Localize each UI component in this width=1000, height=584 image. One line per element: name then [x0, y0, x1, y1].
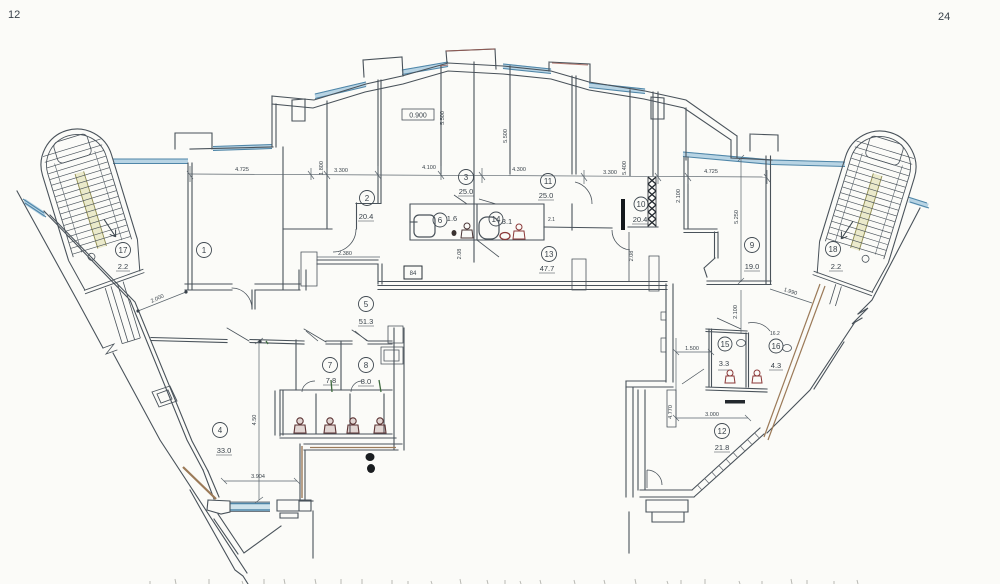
svg-text:25.0: 25.0 [539, 191, 554, 200]
svg-text:1.6: 1.6 [447, 214, 457, 223]
svg-text:10: 10 [637, 200, 646, 209]
svg-text:19.0: 19.0 [745, 262, 760, 271]
svg-text:2.1: 2.1 [548, 217, 555, 223]
svg-text:24: 24 [938, 11, 950, 23]
svg-text:9: 9 [750, 241, 755, 250]
svg-text:18: 18 [829, 245, 838, 254]
svg-text:12: 12 [718, 427, 727, 436]
svg-text:21.8: 21.8 [715, 443, 730, 452]
svg-text:5: 5 [364, 300, 369, 309]
svg-text:25.0: 25.0 [459, 187, 474, 196]
svg-text:4.770: 4.770 [668, 405, 674, 419]
svg-text:2.380: 2.380 [338, 251, 352, 257]
svg-text:11: 11 [544, 177, 553, 186]
svg-text:2.100: 2.100 [733, 305, 739, 319]
svg-text:47.7: 47.7 [540, 264, 555, 273]
svg-text:20.4: 20.4 [359, 212, 374, 221]
svg-text:2.100: 2.100 [676, 189, 682, 203]
svg-text:17: 17 [119, 246, 128, 255]
svg-text:15: 15 [721, 340, 730, 349]
svg-text:5.400: 5.400 [622, 161, 628, 175]
svg-text:3.000: 3.000 [705, 412, 719, 418]
svg-text:8.0: 8.0 [361, 377, 371, 386]
svg-text:2.08: 2.08 [457, 249, 463, 260]
svg-text:3.904: 3.904 [251, 474, 265, 480]
svg-text:4.50: 4.50 [252, 415, 258, 426]
svg-text:1.500: 1.500 [685, 346, 699, 352]
svg-text:7: 7 [328, 361, 333, 370]
svg-text:1: 1 [202, 246, 207, 255]
svg-text:5.500: 5.500 [440, 111, 446, 125]
svg-text:5.500: 5.500 [503, 129, 509, 143]
svg-text:3.300: 3.300 [334, 168, 348, 174]
svg-text:8: 8 [364, 361, 369, 370]
svg-text:4.300: 4.300 [512, 167, 526, 173]
svg-text:51.3: 51.3 [359, 317, 374, 326]
svg-text:6: 6 [438, 216, 443, 225]
svg-text:2.08: 2.08 [629, 251, 635, 262]
svg-text:3: 3 [464, 173, 469, 182]
svg-text:0.900: 0.900 [409, 113, 427, 120]
svg-text:12: 12 [8, 9, 20, 21]
svg-text:84: 84 [410, 271, 417, 277]
svg-text:20.4: 20.4 [633, 215, 648, 224]
svg-text:16.2: 16.2 [770, 331, 780, 337]
svg-text:2: 2 [365, 194, 370, 203]
svg-text:2.2: 2.2 [118, 262, 128, 271]
svg-text:33.0: 33.0 [217, 446, 232, 455]
svg-text:2.2: 2.2 [831, 262, 841, 271]
svg-text:1.800: 1.800 [319, 161, 325, 175]
svg-text:3.1: 3.1 [502, 217, 512, 226]
svg-text:4: 4 [218, 426, 223, 435]
svg-text:4.725: 4.725 [704, 169, 718, 175]
svg-text:4.3: 4.3 [771, 361, 781, 370]
svg-text:3.300: 3.300 [603, 170, 617, 176]
svg-text:3.3: 3.3 [719, 359, 729, 368]
svg-text:13: 13 [545, 250, 554, 259]
svg-text:4.725: 4.725 [235, 167, 249, 173]
svg-text:4.100: 4.100 [422, 165, 436, 171]
svg-text:16: 16 [772, 342, 781, 351]
svg-text:5.250: 5.250 [734, 210, 740, 224]
